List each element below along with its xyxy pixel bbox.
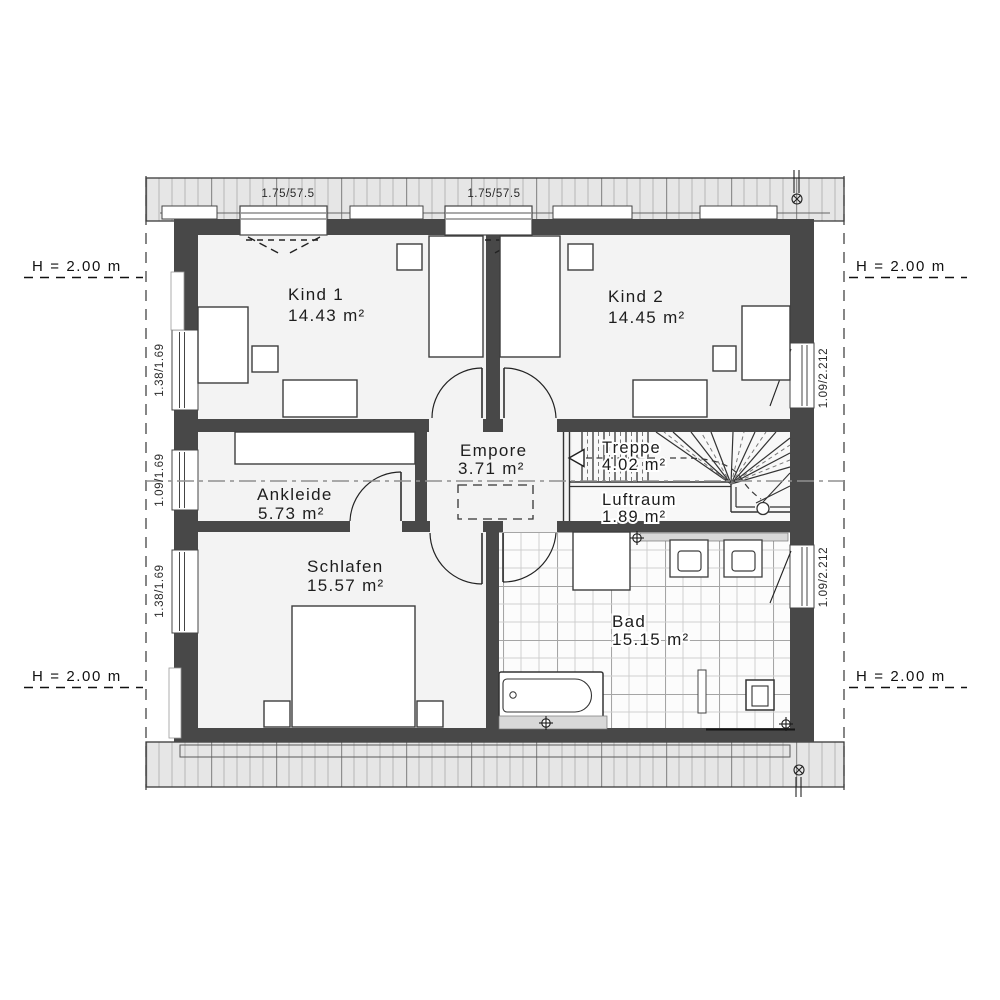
window-label-left: 1.38/1.69 <box>154 564 166 617</box>
double-bed <box>292 606 415 727</box>
nightstand <box>568 244 593 270</box>
svg-text:Empore: Empore <box>460 441 527 460</box>
svg-text:15.57 m²: 15.57 m² <box>307 576 385 595</box>
window-label-right: 1.09/2.212 <box>818 348 830 408</box>
svg-text:3.71 m²: 3.71 m² <box>458 459 525 478</box>
window-label-left: 1.38/1.69 <box>154 343 166 396</box>
svg-text:Kind 1: Kind 1 <box>288 285 344 304</box>
bed <box>742 306 790 380</box>
bed <box>429 236 483 357</box>
room-label-treppe: Treppe 4.02 m² <box>602 439 666 474</box>
desk <box>283 380 357 417</box>
svg-text:Ankleide: Ankleide <box>257 485 333 504</box>
svg-text:4.02 m²: 4.02 m² <box>602 456 666 474</box>
svg-text:Treppe: Treppe <box>602 439 661 457</box>
bed <box>198 307 248 383</box>
window-ankleide-left <box>172 450 198 510</box>
height-mark-label: H = 2.00 m <box>856 258 946 275</box>
room-label-luftraum: Luftraum 1.89 m² <box>602 491 677 526</box>
svg-text:14.45 m²: 14.45 m² <box>608 308 686 327</box>
roof-window-label: 1.75/57.5 <box>467 188 520 200</box>
window-schlafen-left <box>172 550 198 633</box>
window-label-left: 1.09/1.69 <box>154 453 166 506</box>
svg-text:Luftraum: Luftraum <box>602 491 677 509</box>
svg-text:5.73 m²: 5.73 m² <box>258 504 325 523</box>
room-label-schlafen: Schlafen 15.57 m² <box>307 557 385 595</box>
window-kind1-left <box>172 330 198 410</box>
floor-plan-sheet: H = 2.00 m H = 2.00 m H = 2.00 m H = 2.0… <box>0 0 1000 1000</box>
height-mark-label: H = 2.00 m <box>856 668 946 685</box>
svg-text:Kind 2: Kind 2 <box>608 287 664 306</box>
room-label-empore: Empore 3.71 m² <box>458 441 527 478</box>
washbasin-2 <box>724 540 762 577</box>
nightstand <box>397 244 422 270</box>
height-mark-label: H = 2.00 m <box>32 668 122 685</box>
toilet <box>746 680 774 710</box>
nightstand <box>713 346 736 371</box>
room-label-ankleide: Ankleide 5.73 m² <box>257 485 333 523</box>
svg-text:1.89 m²: 1.89 m² <box>602 508 666 526</box>
svg-text:Bad: Bad <box>612 612 646 631</box>
wardrobe-ankleide <box>235 432 415 464</box>
nightstand <box>264 701 290 727</box>
mirror-shelf <box>640 533 788 541</box>
stair-newel-post <box>757 503 769 515</box>
roof-overhang-bottom <box>146 742 844 787</box>
bed <box>500 236 560 357</box>
roof-window-label: 1.75/57.5 <box>261 188 314 200</box>
window-label-right: 1.09/2.212 <box>818 547 830 607</box>
nightstand <box>252 346 278 372</box>
desk <box>633 380 707 417</box>
nightstand <box>417 701 443 727</box>
bathtub <box>499 672 603 718</box>
washbasin-1 <box>670 540 708 577</box>
svg-text:14.43 m²: 14.43 m² <box>288 306 366 325</box>
wc-door-leaf <box>698 670 706 713</box>
staircase <box>564 432 791 521</box>
floor-plan: H = 2.00 m H = 2.00 m H = 2.00 m H = 2.0… <box>0 0 1000 1000</box>
shower <box>573 532 630 590</box>
height-mark-label: H = 2.00 m <box>32 258 122 275</box>
svg-text:15.15 m²: 15.15 m² <box>612 630 690 649</box>
svg-text:Schlafen: Schlafen <box>307 557 384 576</box>
